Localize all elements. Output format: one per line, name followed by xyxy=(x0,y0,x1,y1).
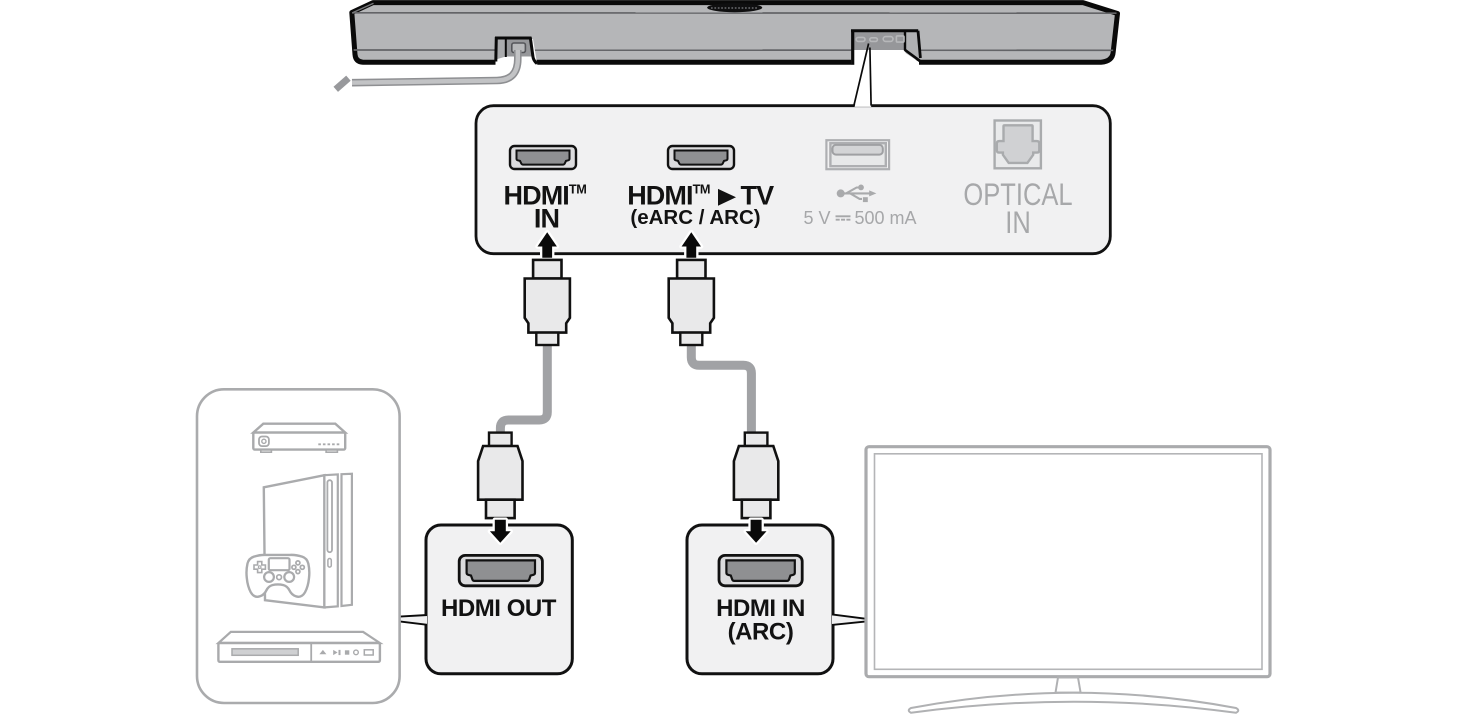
svg-text:500 mA: 500 mA xyxy=(855,208,917,228)
svg-text:IN: IN xyxy=(534,203,559,233)
svg-text:(ARC): (ARC) xyxy=(728,619,794,646)
svg-text:(eARC / ARC): (eARC / ARC) xyxy=(630,206,760,229)
svg-text:5 V: 5 V xyxy=(803,208,830,228)
svg-text:HDMI OUT: HDMI OUT xyxy=(441,595,557,622)
svg-text:IN: IN xyxy=(1005,205,1031,240)
